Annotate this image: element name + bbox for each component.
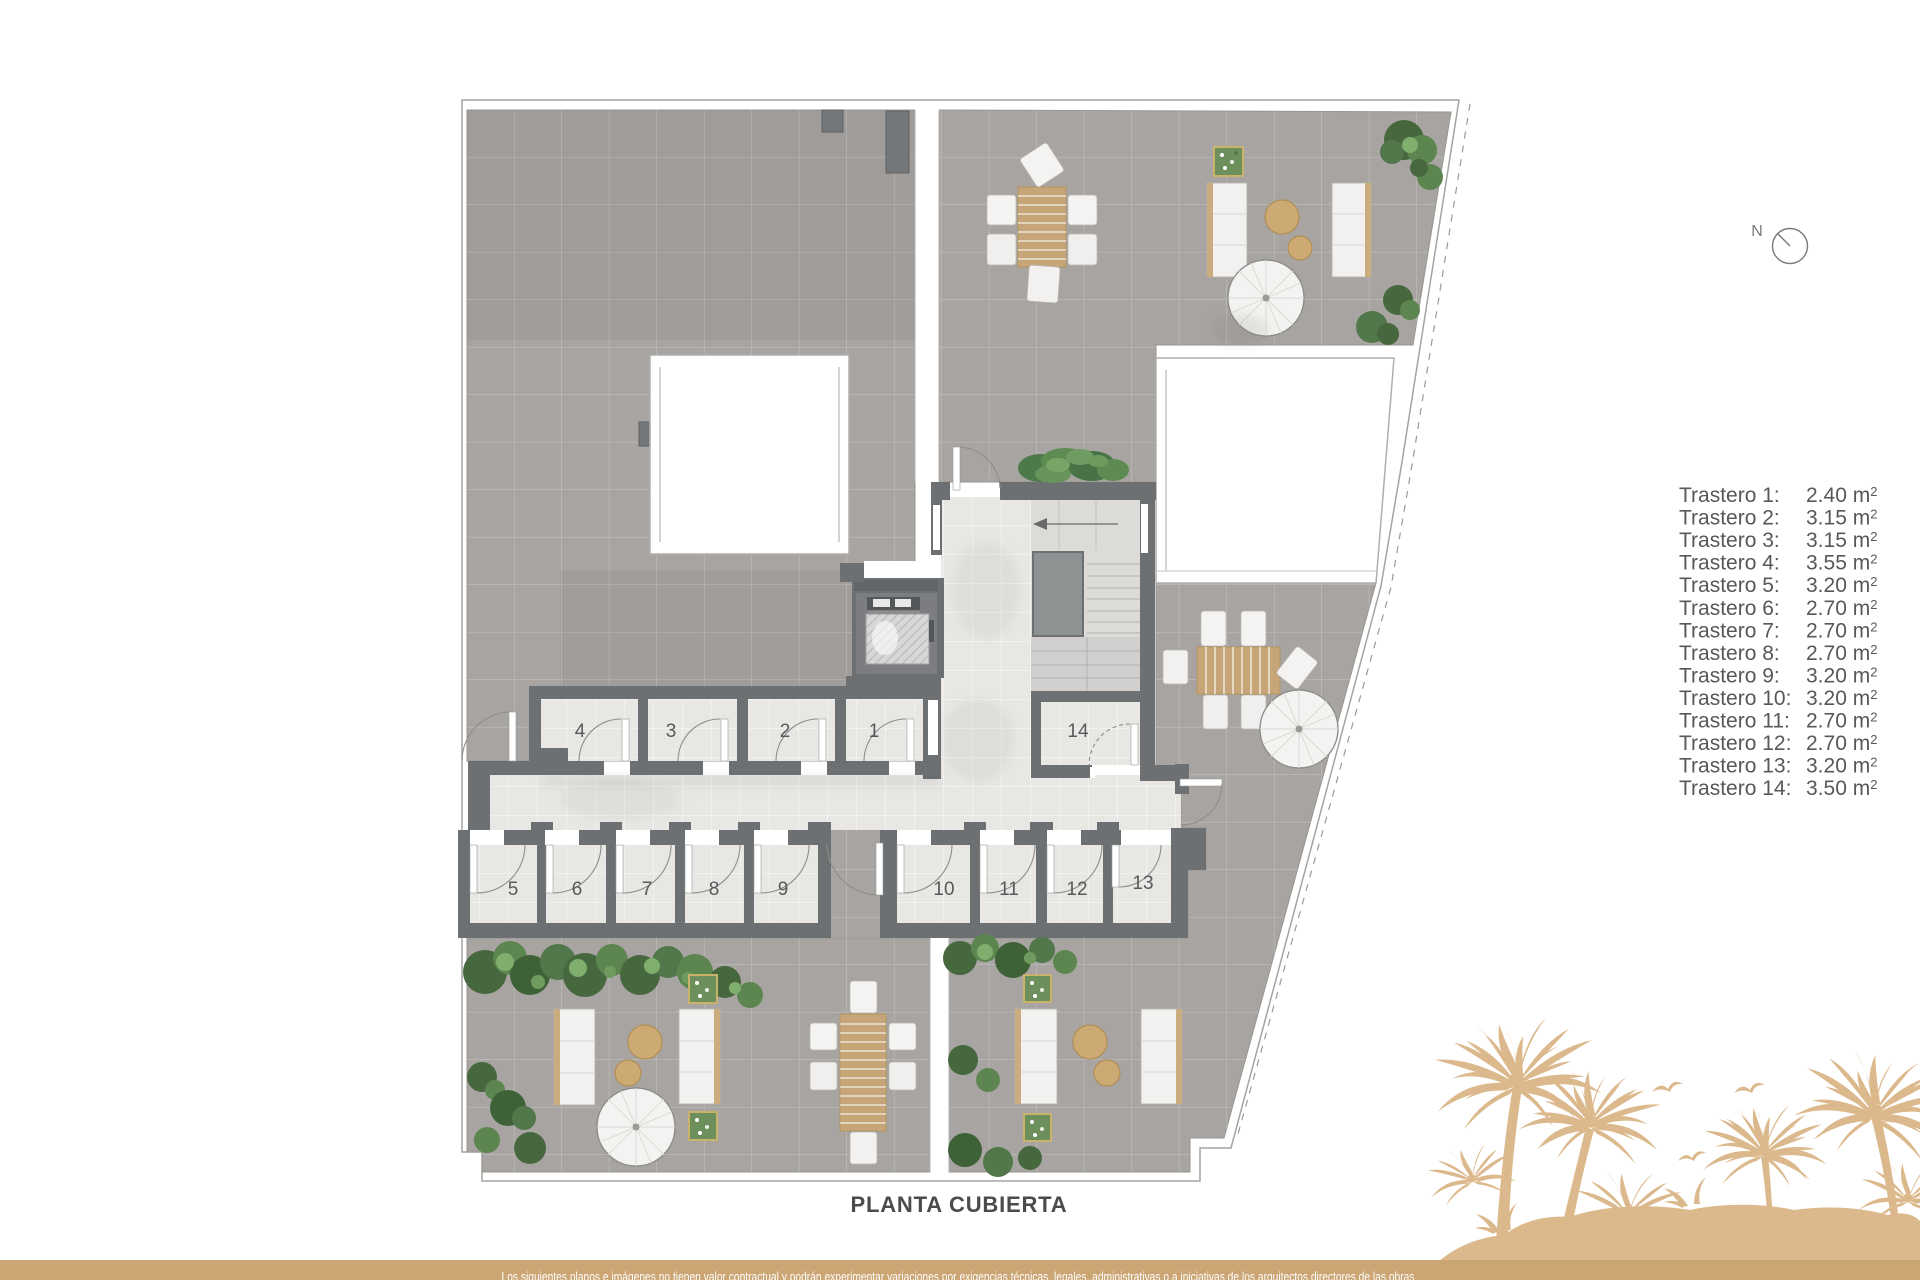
svg-text:6: 6 (572, 879, 583, 900)
svg-text:Trastero 2:: Trastero 2: (1679, 507, 1780, 530)
svg-text:Trastero 3:: Trastero 3: (1679, 529, 1780, 552)
svg-text:Trastero 7:: Trastero 7: (1679, 619, 1780, 642)
svg-text:8: 8 (709, 879, 720, 900)
svg-text:9: 9 (778, 879, 789, 900)
svg-text:3: 3 (666, 721, 677, 742)
svg-text:Trastero 14:: Trastero 14: (1679, 777, 1791, 800)
svg-text:3.20 m2: 3.20 m2 (1806, 755, 1877, 778)
svg-text:2.70 m2: 2.70 m2 (1806, 619, 1877, 642)
svg-text:3.15 m2: 3.15 m2 (1806, 507, 1877, 530)
svg-text:1: 1 (869, 721, 880, 742)
svg-text:Trastero 1:: Trastero 1: (1679, 484, 1780, 507)
svg-text:2.70 m2: 2.70 m2 (1806, 732, 1877, 755)
svg-text:12: 12 (1066, 879, 1087, 900)
svg-text:2.70 m2: 2.70 m2 (1806, 642, 1877, 665)
svg-text:Trastero 11:: Trastero 11: (1679, 710, 1790, 733)
svg-text:2.40 m2: 2.40 m2 (1806, 484, 1877, 507)
svg-text:Trastero 6:: Trastero 6: (1679, 597, 1780, 620)
svg-text:2: 2 (780, 721, 791, 742)
svg-text:3.20 m2: 3.20 m2 (1806, 574, 1877, 597)
svg-text:3.50 m2: 3.50 m2 (1806, 777, 1877, 800)
svg-text:3.55 m2: 3.55 m2 (1806, 552, 1877, 575)
svg-text:7: 7 (642, 879, 653, 900)
svg-text:Trastero 13:: Trastero 13: (1679, 755, 1791, 778)
svg-text:Trastero 10:: Trastero 10: (1679, 687, 1791, 710)
svg-text:3.20 m2: 3.20 m2 (1806, 687, 1877, 710)
svg-text:3.20 m2: 3.20 m2 (1806, 664, 1877, 687)
svg-text:Trastero 8:: Trastero 8: (1679, 642, 1780, 665)
svg-text:Trastero 4:: Trastero 4: (1679, 552, 1780, 575)
svg-text:Trastero 5:: Trastero 5: (1679, 574, 1780, 597)
svg-text:Trastero 9:: Trastero 9: (1679, 664, 1780, 687)
svg-text:13: 13 (1132, 873, 1153, 894)
svg-text:3.15 m2: 3.15 m2 (1806, 529, 1877, 552)
svg-text:Los siguientes planos e imágen: Los siguientes planos e imágenes no tien… (502, 1269, 1415, 1280)
svg-text:14: 14 (1067, 721, 1089, 742)
svg-text:4: 4 (575, 721, 586, 742)
svg-text:N: N (1751, 223, 1763, 240)
svg-text:Trastero 12:: Trastero 12: (1679, 732, 1791, 755)
svg-text:5: 5 (508, 879, 519, 900)
svg-text:2.70 m2: 2.70 m2 (1806, 597, 1877, 620)
svg-text:2.70 m2: 2.70 m2 (1806, 710, 1877, 733)
svg-text:10: 10 (933, 879, 954, 900)
svg-text:PLANTA CUBIERTA: PLANTA CUBIERTA (851, 1192, 1068, 1217)
svg-text:11: 11 (999, 879, 1019, 900)
